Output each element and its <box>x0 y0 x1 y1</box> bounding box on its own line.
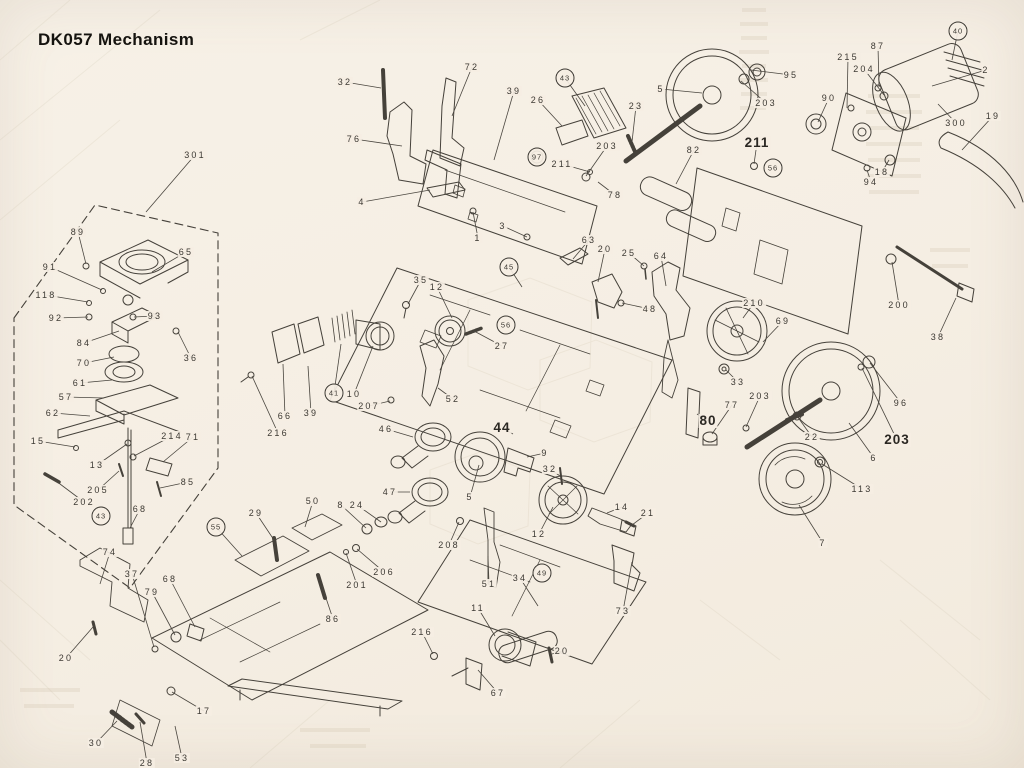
part-label-89: 89 <box>70 227 86 237</box>
part-label-36: 36 <box>183 353 199 363</box>
part-label-202: 202 <box>72 497 96 507</box>
part-label-200: 200 <box>887 300 911 310</box>
part-label-46: 46 <box>378 424 394 434</box>
part-label-11: 11 <box>470 603 486 613</box>
part-label-77: 77 <box>724 400 740 410</box>
part-label-23: 23 <box>628 101 644 111</box>
part-label-94: 94 <box>863 177 879 187</box>
part-label-48: 48 <box>642 304 658 314</box>
part-label-7: 7 <box>818 538 827 548</box>
part-label-44: 44 <box>492 421 511 435</box>
part-label-208: 208 <box>437 540 461 550</box>
part-label-82: 82 <box>686 145 702 155</box>
part-label-57: 57 <box>58 392 74 402</box>
part-label-61: 61 <box>72 378 88 388</box>
part-label-37: 37 <box>124 569 140 579</box>
part-label-43: 43 <box>556 69 575 88</box>
part-label-22: 22 <box>804 432 820 442</box>
part-label-32: 32 <box>542 464 558 474</box>
part-label-28: 28 <box>139 758 155 768</box>
part-label-65: 65 <box>178 247 194 257</box>
part-label-216: 216 <box>410 627 434 637</box>
part-label-95: 95 <box>783 70 799 80</box>
part-label-4: 4 <box>357 197 366 207</box>
part-label-5: 5 <box>656 84 665 94</box>
part-label-301: 301 <box>183 150 207 160</box>
part-labels-layer: 3018965911189293843670615762151321471205… <box>0 0 1024 768</box>
part-label-6: 6 <box>869 453 878 463</box>
part-label-118: 118 <box>35 290 58 300</box>
part-label-69: 69 <box>775 316 791 326</box>
part-label-56: 56 <box>497 316 516 335</box>
part-label-20: 20 <box>58 653 74 663</box>
part-label-49: 49 <box>533 564 552 583</box>
part-label-113: 113 <box>851 484 874 494</box>
part-label-25: 25 <box>621 248 637 258</box>
part-label-24: 24 <box>349 500 365 510</box>
part-label-8: 8 <box>336 500 345 510</box>
part-label-203: 203 <box>595 141 619 151</box>
part-label-47: 47 <box>382 487 398 497</box>
part-label-3: 3 <box>498 221 507 231</box>
part-label-203: 203 <box>748 391 772 401</box>
part-label-51: 51 <box>481 579 497 589</box>
part-label-9: 9 <box>540 448 549 458</box>
part-label-68: 68 <box>132 504 148 514</box>
part-label-78: 78 <box>607 190 623 200</box>
part-label-29: 29 <box>248 508 264 518</box>
part-label-35: 35 <box>413 275 429 285</box>
part-label-214: 214 <box>160 431 184 441</box>
part-label-79: 79 <box>144 587 160 597</box>
part-label-1: 1 <box>473 233 482 243</box>
part-label-66: 66 <box>277 411 293 421</box>
part-label-211: 211 <box>551 159 574 169</box>
part-label-63: 63 <box>581 235 597 245</box>
part-label-27: 27 <box>494 341 510 351</box>
part-label-86: 86 <box>325 614 341 624</box>
part-label-204: 204 <box>852 64 876 74</box>
part-label-45: 45 <box>500 258 519 277</box>
part-label-85: 85 <box>180 477 196 487</box>
part-label-17: 17 <box>196 706 212 716</box>
part-label-87: 87 <box>870 41 886 51</box>
part-label-55: 55 <box>207 518 226 537</box>
part-label-40: 40 <box>949 22 968 41</box>
part-label-41: 41 <box>325 384 344 403</box>
part-label-15: 15 <box>30 436 46 446</box>
part-label-32: 32 <box>337 77 353 87</box>
part-label-26: 26 <box>530 95 546 105</box>
part-label-20: 20 <box>554 646 570 656</box>
part-label-53: 53 <box>174 753 190 763</box>
part-label-215: 215 <box>836 52 860 62</box>
part-label-201: 201 <box>345 580 369 590</box>
part-label-19: 19 <box>985 111 1001 121</box>
part-label-62: 62 <box>45 408 61 418</box>
part-label-52: 52 <box>445 394 461 404</box>
part-label-30: 30 <box>88 738 104 748</box>
part-label-90: 90 <box>821 93 837 103</box>
part-label-50: 50 <box>305 496 321 506</box>
part-label-92: 92 <box>48 313 64 323</box>
part-label-96: 96 <box>893 398 909 408</box>
part-label-10: 10 <box>346 389 362 399</box>
part-label-34: 34 <box>512 573 528 583</box>
part-label-205: 205 <box>86 485 110 495</box>
part-label-43: 43 <box>92 507 111 526</box>
part-label-13: 13 <box>89 460 105 470</box>
part-label-207: 207 <box>357 401 381 411</box>
part-label-2: 2 <box>981 65 990 75</box>
part-label-74: 74 <box>102 547 118 557</box>
part-label-70: 70 <box>76 358 92 368</box>
part-label-12: 12 <box>531 529 547 539</box>
part-label-18: 18 <box>874 167 890 177</box>
part-label-93: 93 <box>147 311 163 321</box>
part-label-80: 80 <box>698 414 717 428</box>
part-label-300: 300 <box>944 118 968 128</box>
part-label-21: 21 <box>640 508 656 518</box>
part-label-12: 12 <box>429 282 445 292</box>
part-label-216: 216 <box>266 428 290 438</box>
part-label-68: 68 <box>162 574 178 584</box>
part-label-39: 39 <box>506 86 522 96</box>
part-label-73: 73 <box>615 606 631 616</box>
part-label-84: 84 <box>76 338 92 348</box>
scanned-manual-page: DK057 Mechanism 301896591118929384367061… <box>0 0 1024 768</box>
part-label-56: 56 <box>764 159 783 178</box>
part-label-76: 76 <box>346 134 362 144</box>
part-label-72: 72 <box>464 62 480 72</box>
part-label-39: 39 <box>303 408 319 418</box>
part-label-20: 20 <box>597 244 613 254</box>
part-label-14: 14 <box>614 502 630 512</box>
part-label-210: 210 <box>742 298 766 308</box>
part-label-206: 206 <box>372 567 396 577</box>
part-label-97: 97 <box>528 148 547 167</box>
part-label-203: 203 <box>883 433 911 447</box>
part-label-33: 33 <box>730 377 746 387</box>
part-label-5: 5 <box>465 492 474 502</box>
part-label-71: 71 <box>185 432 201 442</box>
part-label-91: 91 <box>42 262 58 272</box>
part-label-203: 203 <box>754 98 778 108</box>
part-label-67: 67 <box>490 688 506 698</box>
part-label-38: 38 <box>930 332 946 342</box>
part-label-211: 211 <box>744 136 771 150</box>
part-label-64: 64 <box>653 251 669 261</box>
